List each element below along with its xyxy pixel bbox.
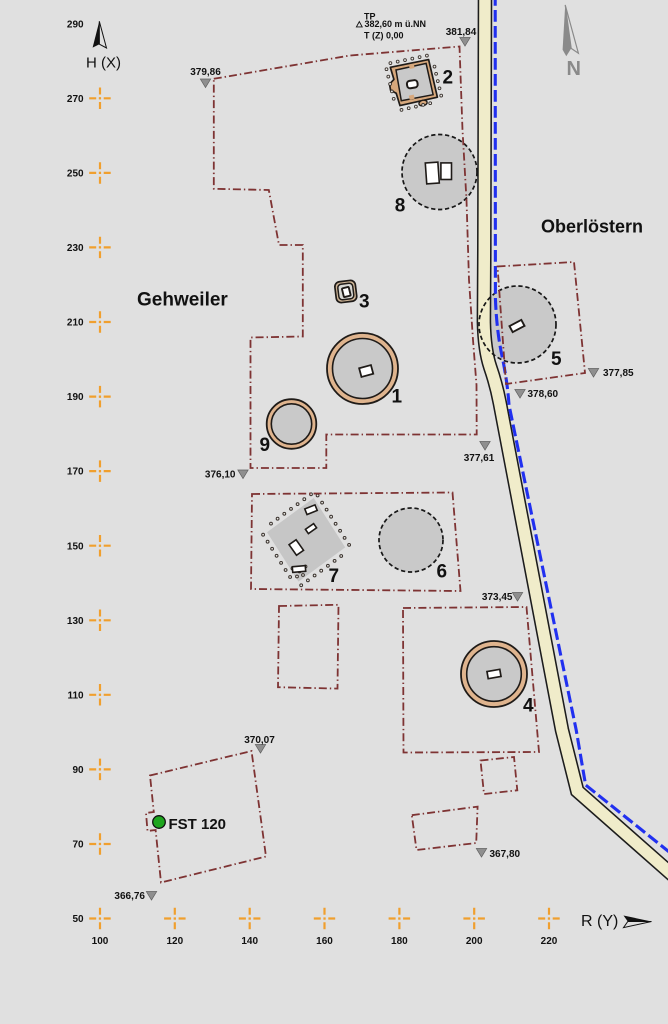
svg-text:373,45: 373,45 <box>482 592 513 603</box>
svg-text:1: 1 <box>392 387 403 408</box>
svg-text:140: 140 <box>241 936 258 947</box>
svg-text:100: 100 <box>92 936 109 947</box>
svg-text:377,85: 377,85 <box>603 368 634 379</box>
svg-text:290: 290 <box>67 19 84 30</box>
svg-text:6: 6 <box>437 562 448 583</box>
svg-text:9: 9 <box>260 435 271 456</box>
svg-text:130: 130 <box>67 616 84 627</box>
svg-text:250: 250 <box>67 169 84 180</box>
svg-text:2: 2 <box>443 68 454 89</box>
svg-text:210: 210 <box>67 318 84 329</box>
svg-text:120: 120 <box>166 936 183 947</box>
svg-text:50: 50 <box>72 914 84 925</box>
svg-text:376,10: 376,10 <box>205 470 236 481</box>
svg-text:366,76: 366,76 <box>114 891 145 902</box>
svg-text:4: 4 <box>523 696 534 717</box>
svg-text:H (X): H (X) <box>86 55 121 72</box>
svg-text:FST 120: FST 120 <box>169 816 227 833</box>
svg-text:270: 270 <box>67 94 84 105</box>
svg-text:N: N <box>567 58 581 80</box>
svg-text:7: 7 <box>329 566 340 587</box>
svg-text:Gehweiler: Gehweiler <box>137 290 228 311</box>
svg-text:180: 180 <box>391 936 408 947</box>
svg-text:5: 5 <box>551 349 562 370</box>
svg-text:150: 150 <box>67 541 84 552</box>
svg-text:230: 230 <box>67 243 84 254</box>
svg-text:378,60: 378,60 <box>528 389 559 400</box>
svg-text:170: 170 <box>67 467 84 478</box>
svg-text:160: 160 <box>316 936 333 947</box>
svg-text:3: 3 <box>359 292 370 313</box>
svg-text:367,80: 367,80 <box>490 849 521 860</box>
svg-text:R (Y): R (Y) <box>581 913 618 930</box>
svg-text:Oberlöstern: Oberlöstern <box>541 217 643 237</box>
svg-text:377,61: 377,61 <box>464 453 495 464</box>
svg-text:200: 200 <box>466 936 483 947</box>
svg-text:220: 220 <box>541 936 558 947</box>
svg-text:370,07: 370,07 <box>244 735 275 746</box>
svg-text:T (Z) 0,00: T (Z) 0,00 <box>364 31 404 41</box>
svg-text:382,60 m ü.NN: 382,60 m ü.NN <box>365 19 427 29</box>
svg-text:381,84: 381,84 <box>446 27 477 38</box>
svg-text:90: 90 <box>72 765 84 776</box>
svg-text:190: 190 <box>67 392 84 403</box>
svg-text:70: 70 <box>72 840 84 851</box>
svg-text:8: 8 <box>395 196 406 217</box>
svg-text:110: 110 <box>67 690 84 701</box>
svg-text:379,86: 379,86 <box>190 67 221 78</box>
